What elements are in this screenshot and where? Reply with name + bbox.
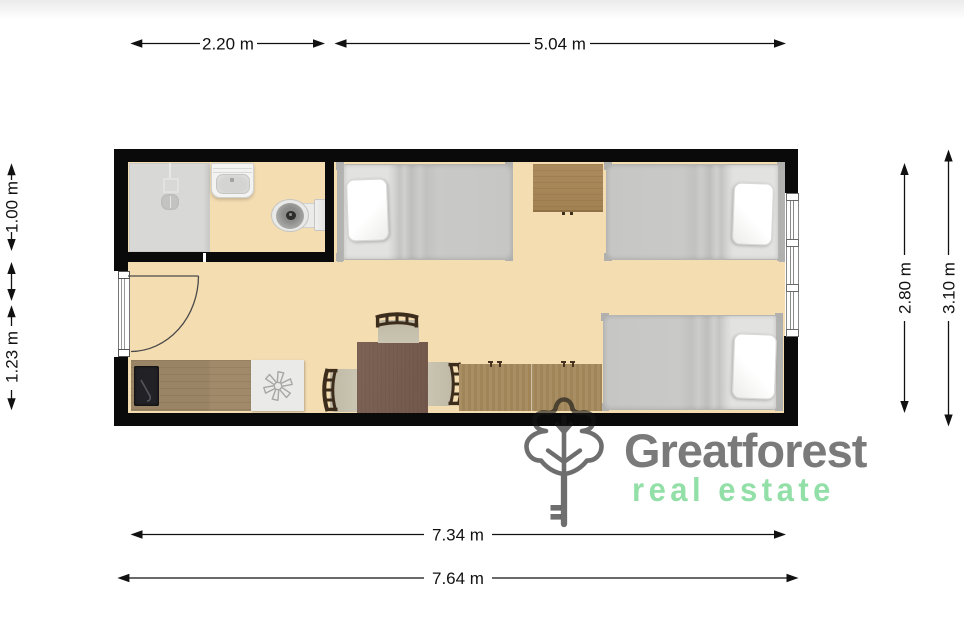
svg-text:7.64 m: 7.64 m [432, 569, 484, 588]
svg-text:3.10 m: 3.10 m [940, 262, 959, 314]
svg-text:1.00 m: 1.00 m [3, 181, 22, 233]
svg-text:5.04 m: 5.04 m [534, 35, 586, 54]
svg-text:7.34 m: 7.34 m [432, 526, 484, 545]
svg-text:2.80 m: 2.80 m [896, 262, 915, 314]
svg-text:1.23 m: 1.23 m [3, 331, 22, 383]
svg-text:2.20 m: 2.20 m [202, 35, 254, 54]
